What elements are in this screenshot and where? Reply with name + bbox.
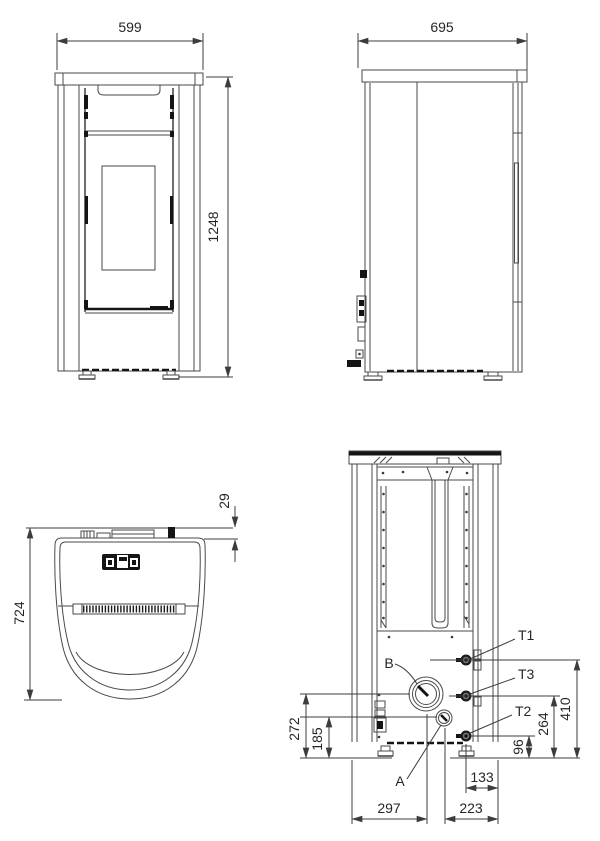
dim-t3-height: 264 — [535, 712, 551, 736]
flue-outlet-b — [409, 677, 443, 711]
top-rear-stubs — [81, 527, 175, 538]
rear-labels: T1 T3 T2 B A — [384, 627, 534, 789]
rear-left-dims: 272 185 — [286, 694, 437, 758]
front-hinge-marks — [84, 95, 174, 309]
control-panel-display — [102, 554, 140, 570]
dim-a-height: 185 — [309, 727, 325, 751]
rear-feet — [378, 746, 474, 756]
front-feet — [79, 371, 179, 379]
label-t2: T2 — [515, 703, 532, 719]
front-height-label: 1248 — [205, 211, 221, 242]
dim-b-from-left: 297 — [377, 800, 401, 816]
front-window-glass — [102, 166, 155, 270]
rear-panel-rails — [381, 486, 469, 628]
label-b: B — [384, 655, 393, 671]
front-view: 599 1248 — [55, 19, 233, 379]
rear-flue-channel — [427, 467, 453, 628]
side-left-fittings — [347, 270, 367, 367]
side-view: 695 — [347, 19, 527, 380]
power-inlet — [347, 360, 361, 367]
front-width-label: 599 — [118, 19, 142, 35]
front-top-plate — [55, 73, 203, 85]
side-feet — [364, 372, 502, 380]
label-t1: T1 — [518, 627, 535, 643]
connector-t2 — [456, 731, 472, 742]
dim-t1-height: 410 — [557, 697, 573, 721]
technical-drawing-canvas: 599 1248 — [0, 0, 600, 841]
rear-back-panel — [374, 467, 481, 743]
top-depth-label: 724 — [11, 601, 27, 625]
flue-rear-stub — [168, 527, 175, 538]
front-body — [58, 85, 200, 371]
label-t3: T3 — [518, 666, 535, 682]
valve-a — [436, 710, 452, 726]
dim-a-from-right: 223 — [459, 800, 483, 816]
dim-t-inset: 133 — [470, 769, 494, 785]
side-body — [347, 82, 522, 372]
dim-side-depth: 695 — [358, 19, 527, 76]
dim-t2-height: 96 — [510, 739, 526, 755]
rear-protrusion-label: 29 — [216, 493, 232, 509]
dim-front-height: 1248 — [178, 77, 233, 377]
rear-top-plate — [349, 451, 501, 464]
label-a: A — [395, 773, 405, 789]
side-depth-label: 695 — [430, 19, 454, 35]
dim-b-height: 272 — [286, 717, 302, 741]
rear-view: T1 T3 T2 B A 410 264 96 — [286, 451, 580, 824]
side-top-plate — [362, 70, 527, 82]
hopper-lid-handle — [98, 85, 160, 95]
rear-terminal-block — [374, 694, 386, 739]
top-air-grille — [58, 604, 199, 614]
top-view: 724 29 — [11, 493, 238, 700]
rear-side-columns — [352, 464, 498, 742]
dim-front-width: 599 — [57, 19, 203, 70]
